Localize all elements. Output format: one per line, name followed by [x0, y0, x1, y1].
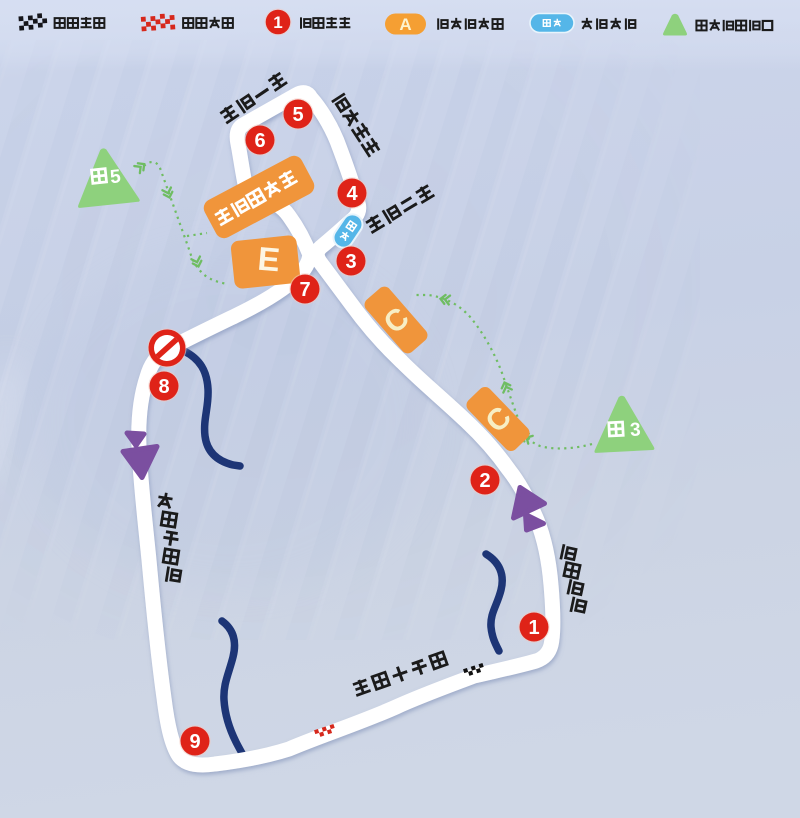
svg-text:E: E — [256, 240, 281, 279]
svg-text:9: 9 — [189, 731, 200, 753]
svg-text:3: 3 — [630, 419, 642, 441]
svg-text:4: 4 — [346, 183, 358, 205]
svg-text:1: 1 — [273, 13, 282, 32]
svg-text:A: A — [399, 15, 411, 34]
svg-text:1: 1 — [528, 617, 539, 639]
svg-text:6: 6 — [254, 130, 265, 152]
svg-text:5: 5 — [292, 104, 303, 126]
svg-text:8: 8 — [158, 376, 169, 398]
svg-text:2: 2 — [479, 470, 490, 492]
svg-text:3: 3 — [345, 251, 356, 273]
svg-text:7: 7 — [299, 279, 310, 301]
